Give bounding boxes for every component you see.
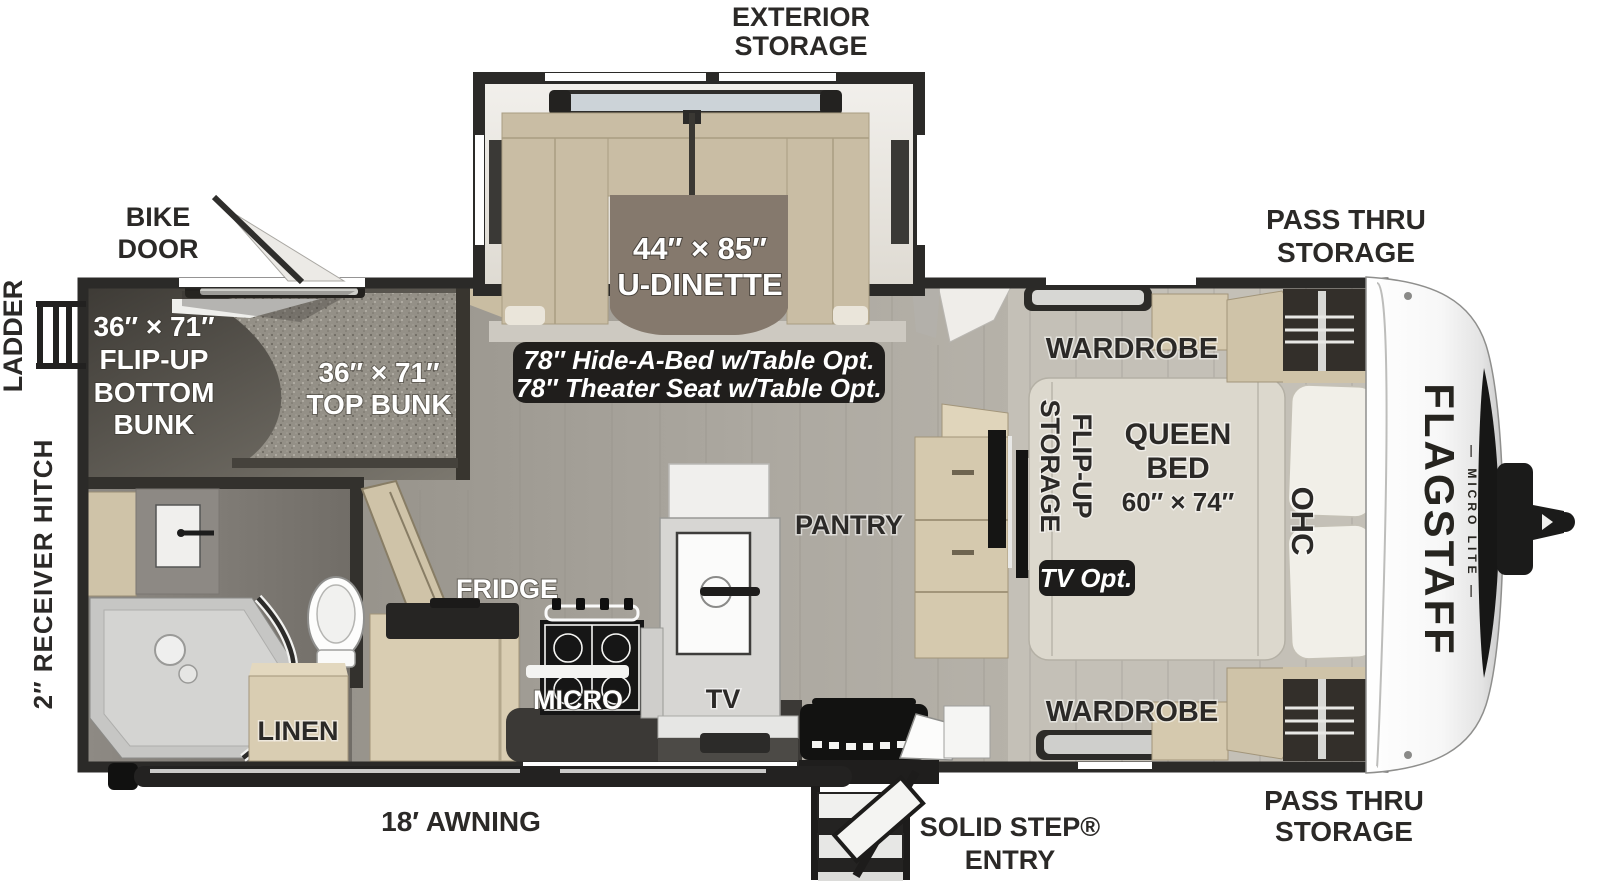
- svg-text:36″ × 71″: 36″ × 71″: [318, 357, 439, 388]
- svg-text:36″ × 71″: 36″ × 71″: [93, 311, 214, 342]
- svg-text:TV: TV: [706, 684, 741, 714]
- svg-text:STORAGE: STORAGE: [1277, 237, 1415, 268]
- svg-text:TOP BUNK: TOP BUNK: [306, 389, 451, 420]
- svg-text:QUEEN: QUEEN: [1125, 418, 1232, 451]
- svg-text:FLIP-UP: FLIP-UP: [100, 344, 209, 375]
- svg-text:WARDROBE: WARDROBE: [1046, 333, 1218, 365]
- svg-text:STORAGE: STORAGE: [1035, 399, 1065, 532]
- svg-text:U-DINETTE: U-DINETTE: [617, 267, 782, 302]
- svg-text:2″ RECEIVER HITCH: 2″ RECEIVER HITCH: [28, 439, 58, 710]
- svg-text:PASS THRU: PASS THRU: [1264, 785, 1424, 816]
- svg-text:ENTRY: ENTRY: [965, 845, 1056, 875]
- svg-text:FRIDGE: FRIDGE: [456, 574, 558, 604]
- svg-text:BUNK: BUNK: [114, 409, 195, 440]
- svg-text:EXTERIOR: EXTERIOR: [732, 2, 870, 32]
- svg-text:TV Opt.: TV Opt.: [1040, 563, 1132, 593]
- svg-text:LINEN: LINEN: [258, 716, 339, 746]
- svg-text:LADDER: LADDER: [0, 280, 28, 393]
- svg-text:BIKE: BIKE: [126, 202, 191, 232]
- svg-text:PANTRY: PANTRY: [795, 510, 903, 540]
- svg-text:WARDROBE: WARDROBE: [1046, 696, 1218, 728]
- svg-text:OHC: OHC: [1285, 487, 1320, 556]
- svg-text:78″ Hide-A-Bed w/Table Opt.: 78″ Hide-A-Bed w/Table Opt.: [524, 345, 875, 375]
- svg-text:SOLID STEP®: SOLID STEP®: [920, 812, 1101, 842]
- svg-text:78″ Theater Seat w/Table Opt.: 78″ Theater Seat w/Table Opt.: [516, 373, 882, 403]
- svg-text:18′ AWNING: 18′ AWNING: [381, 806, 541, 837]
- svg-text:BOTTOM: BOTTOM: [94, 377, 215, 408]
- svg-text:FLIP-UP: FLIP-UP: [1067, 414, 1097, 519]
- svg-text:STORAGE: STORAGE: [1275, 816, 1413, 847]
- svg-text:PASS THRU: PASS THRU: [1266, 204, 1426, 235]
- svg-text:MICRO: MICRO: [533, 685, 623, 715]
- svg-text:44″ × 85″: 44″ × 85″: [633, 231, 767, 266]
- svg-text:60″ × 74″: 60″ × 74″: [1122, 487, 1234, 517]
- svg-text:DOOR: DOOR: [118, 234, 199, 264]
- svg-text:— MICRO LITE —: — MICRO LITE —: [1465, 445, 1479, 601]
- svg-text:BED: BED: [1146, 452, 1209, 485]
- svg-text:FLAGSTAFF: FLAGSTAFF: [1416, 383, 1463, 657]
- svg-text:STORAGE: STORAGE: [734, 31, 867, 61]
